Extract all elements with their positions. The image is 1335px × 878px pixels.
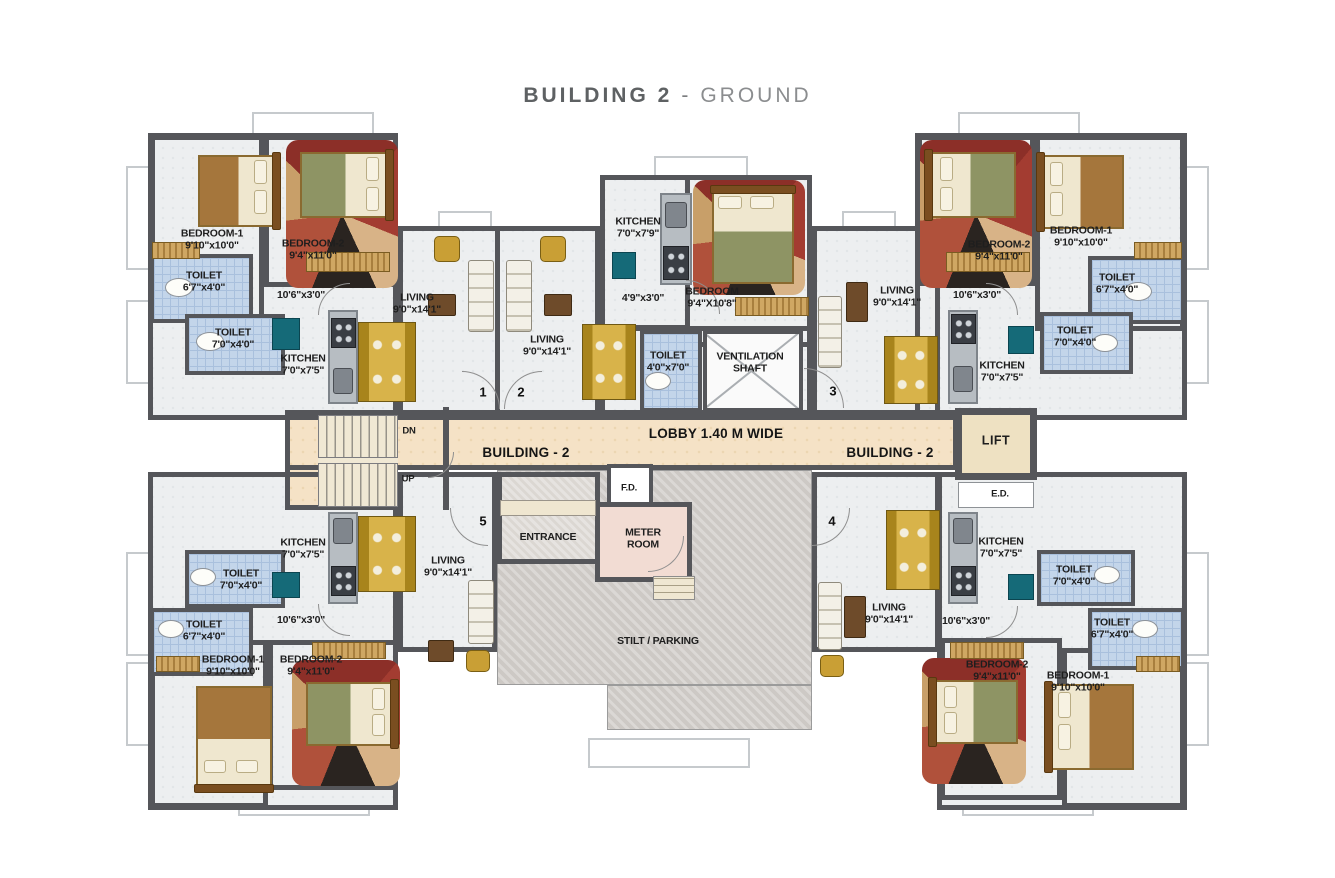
wardrobe-unit (272, 572, 300, 598)
label-bedroom-2: BEDROOM-29'4"x11'0" (280, 654, 342, 679)
pillow (204, 760, 226, 773)
dining-set (886, 510, 940, 590)
side-table (844, 596, 866, 638)
pillow (236, 760, 258, 773)
balcony-projection (1185, 552, 1209, 656)
bed-headboard (710, 185, 796, 194)
pillow (750, 196, 774, 209)
pillow (372, 688, 385, 710)
label-bedroom: BEDROOM9'4"X10'8" (685, 286, 738, 311)
unit-door-number-2: 2 (517, 385, 524, 400)
armchair (466, 650, 490, 672)
label-building-2: BUILDING - 2 (846, 445, 933, 461)
label-stilt-parking: STILT / PARKING (617, 635, 699, 647)
balcony-projection (126, 662, 150, 746)
side-table (428, 640, 454, 662)
label-kitchen: KITCHEN7'0"x7'5" (280, 353, 325, 378)
bed-headboard (385, 149, 394, 221)
label-10-6-x3-0: 10'6"x3'0" (942, 615, 990, 627)
pillow (372, 714, 385, 736)
stilt-outline (607, 685, 812, 730)
stove (663, 246, 689, 280)
pillow (254, 160, 267, 184)
pillow (944, 712, 957, 734)
bed-headboard (1044, 681, 1053, 773)
armchair (540, 236, 566, 262)
label-toilet: TOILET6'7"x4'0" (1091, 617, 1133, 642)
label-f-d: F.D. (621, 482, 637, 493)
sofa (818, 296, 842, 368)
wardrobe (1134, 242, 1182, 259)
label-dn: DN (402, 425, 415, 436)
toilet-seat (1132, 620, 1158, 638)
label-toilet: TOILET6'7"x4'0" (183, 619, 225, 644)
bed-headboard (194, 784, 274, 793)
wardrobe-unit (612, 252, 636, 279)
label-living: LIVING9'0"x14'1" (393, 292, 441, 317)
label-kitchen: KITCHEN7'0"x7'5" (978, 536, 1023, 561)
floor-plan: BEDROOM-19'10"x10'0"BEDROOM-29'4"x11'0"T… (0, 0, 1335, 878)
wall (495, 226, 500, 414)
label-up: UP (402, 473, 415, 484)
toilet-seat (1094, 566, 1120, 584)
sofa (506, 260, 532, 332)
unit-door-number-5: 5 (479, 514, 486, 529)
sofa (468, 580, 494, 644)
label-bedroom-1: BEDROOM-19'10"x10'0" (1050, 225, 1112, 250)
label-bedroom-1: BEDROOM-19'10"x10'0" (202, 654, 264, 679)
label-entrance: ENTRANCE (520, 531, 577, 543)
kitchen-sink (953, 518, 973, 544)
wardrobe (156, 656, 200, 672)
label-bedroom-2: BEDROOM-29'4"x11'0" (282, 238, 344, 263)
pillow (944, 686, 957, 708)
kitchen-sink (333, 368, 353, 394)
label-kitchen: KITCHEN7'0"x7'5" (979, 360, 1024, 385)
balcony-projection (252, 112, 374, 135)
pillow (718, 196, 742, 209)
bed-headboard (272, 152, 281, 230)
pillow (940, 187, 953, 211)
pillow (940, 157, 953, 181)
wardrobe (1136, 656, 1180, 672)
unit-door-number-4: 4 (828, 514, 835, 529)
label-lift: LIFT (982, 434, 1010, 449)
balcony-projection (1185, 662, 1209, 746)
label-ventilation: VENTILATIONSHAFT (716, 351, 783, 376)
label-lobby-1-40-m-wide: LOBBY 1.40 M WIDE (649, 426, 783, 442)
label-kitchen: KITCHEN7'0"x7'5" (280, 537, 325, 562)
label-10-6-x3-0: 10'6"x3'0" (277, 289, 325, 301)
toilet-seat (158, 620, 184, 638)
label-toilet: TOILET6'7"x4'0" (1096, 272, 1138, 297)
armchair (434, 236, 460, 262)
stove (331, 318, 356, 348)
wall-outline (497, 472, 600, 564)
label-bedroom-2: BEDROOM-29'4"x11'0" (966, 659, 1028, 684)
label-building-2: BUILDING - 2 (482, 445, 569, 461)
label-bedroom-1: BEDROOM-19'10"x10'0" (181, 228, 243, 253)
label-meter: METERROOM (625, 527, 661, 552)
label-toilet: TOILET4'0"x7'0" (647, 350, 689, 375)
pillow (1058, 692, 1071, 718)
dining-set (358, 322, 416, 402)
label-4-9-x3-0: 4'9"x3'0" (622, 292, 664, 304)
unit-door-number-1: 1 (479, 385, 486, 400)
stove (951, 566, 976, 596)
balcony-projection (126, 552, 150, 656)
wardrobe-unit (1008, 326, 1034, 354)
dining-set (884, 336, 938, 404)
sofa (818, 582, 842, 650)
stove (951, 314, 976, 344)
wardrobe-unit (1008, 574, 1034, 600)
pillow (1050, 162, 1063, 186)
label-bedroom-1: BEDROOM-19'10"x10'0" (1047, 670, 1109, 695)
bed-headboard (924, 149, 933, 221)
label-kitchen: KITCHEN7'0"x7'9" (615, 216, 660, 241)
label-living: LIVING9'0"x14'1" (424, 555, 472, 580)
bench (500, 500, 596, 516)
steps (653, 576, 695, 600)
label-bedroom-2: BEDROOM-29'4"x11'0" (968, 239, 1030, 264)
balcony-projection (1185, 300, 1209, 384)
pillow (366, 187, 379, 211)
armchair (820, 655, 844, 677)
label-living: LIVING9'0"x14'1" (873, 285, 921, 310)
side-table (544, 294, 572, 316)
bed-headboard (928, 677, 937, 747)
wardrobe-unit (272, 318, 300, 350)
balcony-projection (958, 112, 1080, 135)
pillow (254, 190, 267, 214)
floorplan-page: BUILDING 2-GROUND BEDROOM-19'10"x10'0"BE… (0, 0, 1335, 878)
balcony-projection (654, 156, 748, 177)
label-10-6-x3-0: 10'6"x3'0" (953, 289, 1001, 301)
wardrobe (735, 297, 809, 316)
label-toilet: TOILET7'0"x4'0" (220, 568, 262, 593)
label-toilet: TOILET6'7"x4'0" (183, 270, 225, 295)
balcony-projection (126, 300, 150, 384)
dining-set (582, 324, 636, 400)
label-toilet: TOILET7'0"x4'0" (1053, 564, 1095, 589)
label-toilet: TOILET7'0"x4'0" (1054, 325, 1096, 350)
sofa (468, 260, 494, 332)
stair-landing (318, 457, 398, 464)
pillow (1050, 192, 1063, 216)
dining-set (358, 516, 416, 592)
pillow (1058, 724, 1071, 750)
kitchen-sink (665, 202, 687, 228)
label-10-6-x3-0: 10'6"x3'0" (277, 614, 325, 626)
bed-headboard (1036, 152, 1045, 232)
label-living: LIVING9'0"x14'1" (523, 334, 571, 359)
side-table (846, 282, 868, 322)
stove (331, 566, 356, 596)
label-e-d: E.D. (991, 488, 1009, 499)
pillow (366, 157, 379, 181)
bed-headboard (390, 679, 399, 749)
balcony-projection (1185, 166, 1209, 270)
label-living: LIVING9'0"x14'1" (865, 602, 913, 627)
balcony-projection (126, 166, 150, 270)
toilet-seat (190, 568, 216, 586)
toilet-seat (645, 372, 671, 390)
wardrobe (950, 642, 1024, 659)
balcony-projection (588, 738, 750, 768)
kitchen-sink (333, 518, 353, 544)
kitchen-sink (953, 366, 973, 392)
unit-door-number-3: 3 (829, 384, 836, 399)
label-toilet: TOILET7'0"x4'0" (212, 327, 254, 352)
